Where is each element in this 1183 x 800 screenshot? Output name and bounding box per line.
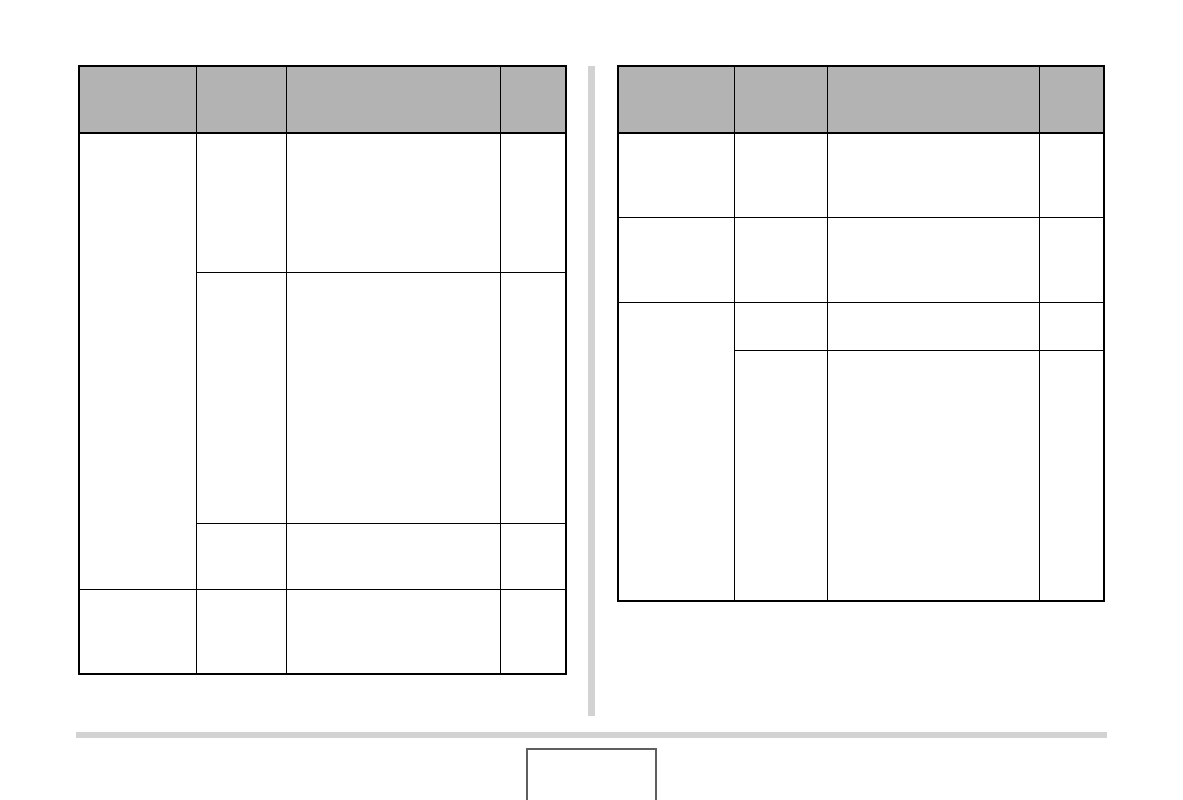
right-table-cell-r1c1 [618, 133, 734, 217]
left-table-row-4 [79, 589, 566, 674]
right-table-cell-r2c2 [734, 217, 827, 302]
right-table-header-cell-3 [827, 66, 1039, 133]
left-table-cell-r2c2 [196, 272, 286, 523]
right-table-cell-r4c3 [827, 350, 1039, 601]
right-table-cell-r2c4 [1039, 217, 1104, 302]
left-table-cell-r4c4 [500, 589, 566, 674]
right-table-cell-r4c2 [734, 350, 827, 601]
left-table-header-cell-2 [196, 66, 286, 133]
right-table-header-row [618, 66, 1104, 133]
left-table-row-1 [79, 133, 566, 272]
left-table-cell-r4c2 [196, 589, 286, 674]
right-table-header-cell-4 [1039, 66, 1104, 133]
left-table-cell-r3c4 [500, 523, 566, 589]
left-table [78, 65, 567, 675]
left-table-cell-r3c2 [196, 523, 286, 589]
right-table-cell-r1c4 [1039, 133, 1104, 217]
left-table-cell-r2c3 [286, 272, 500, 523]
right-table-header-cell-2 [734, 66, 827, 133]
right-table-cell-r4c4 [1039, 350, 1104, 601]
page [0, 0, 1183, 800]
left-table-cell-r4c3 [286, 589, 500, 674]
left-table-cell-r1c1 [79, 133, 196, 589]
right-table-cell-r2c3 [827, 217, 1039, 302]
left-table-cell-r2c4 [500, 272, 566, 523]
right-table-cell-r3c2 [734, 302, 827, 350]
right-table-cell-r2c1 [618, 217, 734, 302]
left-table-cell-r1c4 [500, 133, 566, 272]
left-table-cell-r1c2 [196, 133, 286, 272]
right-table-cell-r1c2 [734, 133, 827, 217]
right-table-row-1 [618, 133, 1104, 217]
left-table-cell-r3c3 [286, 523, 500, 589]
right-table-header-cell-1 [618, 66, 734, 133]
right-table-cell-r3c1 [618, 302, 734, 601]
right-table [617, 65, 1105, 602]
right-table-row-3 [618, 302, 1104, 350]
right-table-row-2 [618, 217, 1104, 302]
left-table-cell-r4c1 [79, 589, 196, 674]
left-table-header-cell-4 [500, 66, 566, 133]
right-table-cell-r3c4 [1039, 302, 1104, 350]
left-table-header-row [79, 66, 566, 133]
left-table-cell-r1c3 [286, 133, 500, 272]
right-table-cell-r3c3 [827, 302, 1039, 350]
right-table-cell-r1c3 [827, 133, 1039, 217]
column-divider [588, 66, 595, 716]
left-table-header-cell-1 [79, 66, 196, 133]
footer-rule [76, 732, 1107, 738]
page-number-box [526, 748, 657, 800]
left-table-header-cell-3 [286, 66, 500, 133]
